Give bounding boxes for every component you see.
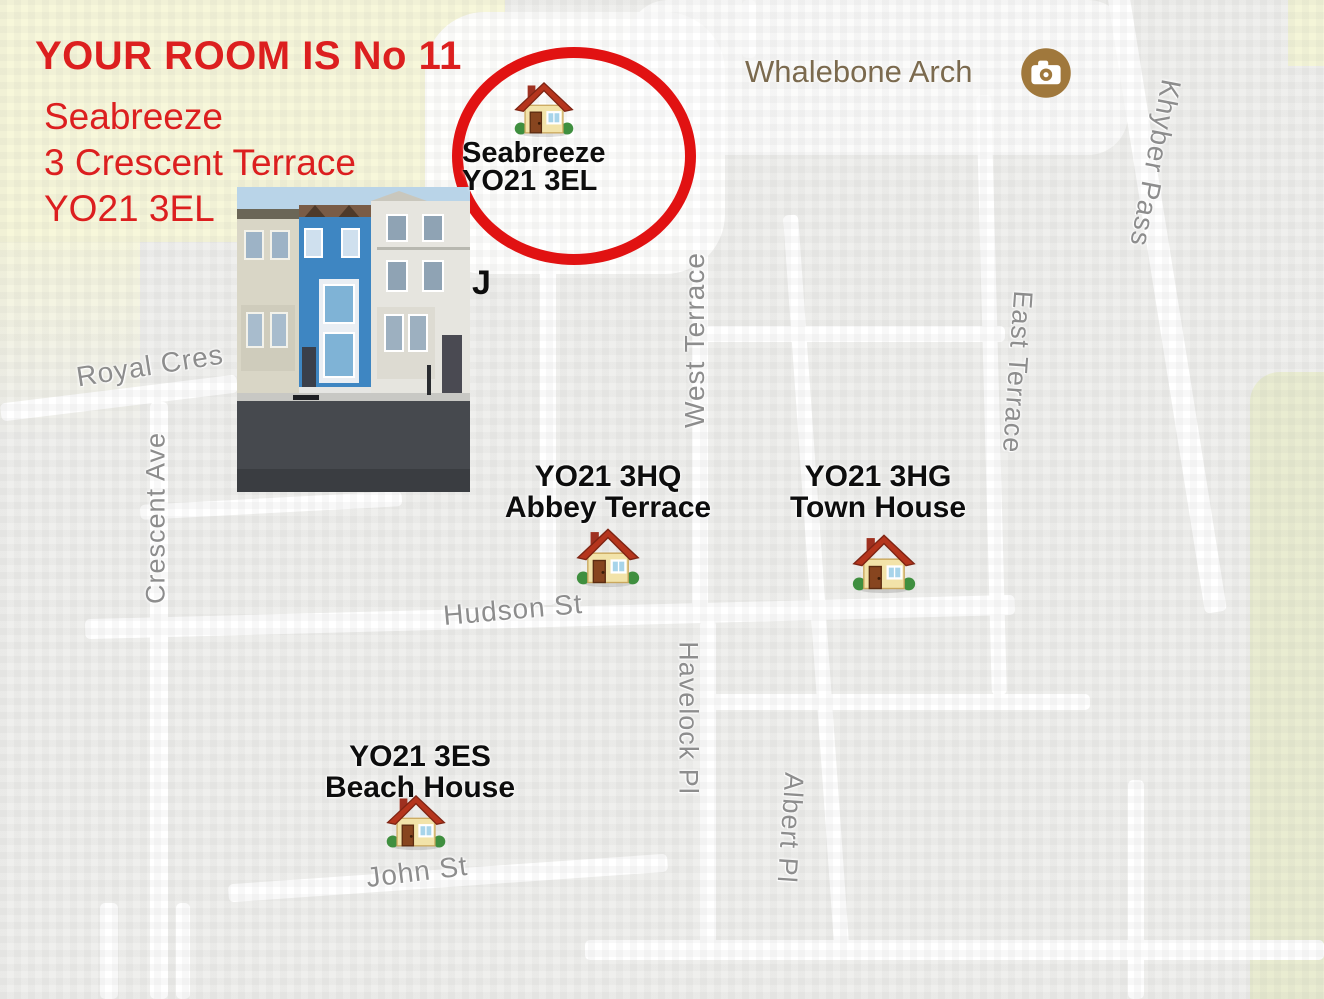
camera-icon[interactable]: [1019, 46, 1073, 100]
road-minor-sw1: [100, 903, 118, 999]
road-esplanade: [140, 491, 402, 520]
road-bottom: [585, 940, 1324, 960]
marker-name: Town House: [728, 492, 1028, 523]
house-icon: [851, 528, 917, 594]
road-minor-vertical: [540, 225, 556, 605]
street-label-havelock-pl: Havelock Pl: [673, 641, 704, 795]
address-postcode: YO21 3EL: [44, 186, 356, 232]
marker-label-town-house: YO21 3HG Town House: [728, 461, 1028, 523]
street-label-east-terrace: East Terrace: [996, 290, 1038, 455]
marker-postcode: YO21 3ES: [270, 741, 570, 772]
house-icon: [513, 76, 575, 138]
road-minor-top: [742, 0, 756, 58]
marker-postcode: YO21 3HQ: [458, 461, 758, 492]
address-name: Seabreeze: [44, 94, 356, 140]
street-label-albert-pl: Albert Pl: [771, 772, 810, 885]
partial-postcode-text: J: [472, 264, 491, 303]
road-minor-se: [1128, 780, 1144, 999]
address-street: 3 Crescent Terrace: [44, 140, 356, 186]
marker-postcode: YO21 3HG: [728, 461, 1028, 492]
street-label-crescent-ave: Crescent Ave: [141, 432, 172, 604]
property-photo: [237, 187, 470, 492]
marker-name: Abbey Terrace: [458, 492, 758, 523]
street-label-west-terrace: West Terrace: [679, 252, 711, 428]
house-icon: [575, 522, 641, 588]
park-region-right: [1250, 372, 1324, 999]
house-icon: [385, 789, 447, 851]
poi-label-whalebone-arch: Whalebone Arch: [745, 54, 972, 90]
road-minor-sw2: [176, 903, 190, 999]
highlight-postcode: YO21 3EL: [462, 167, 606, 195]
road-cross-upper: [695, 326, 1005, 342]
park-region-topright: [1288, 0, 1324, 66]
room-headline: YOUR ROOM IS No 11: [35, 34, 462, 79]
property-address: Seabreeze 3 Crescent Terrace YO21 3EL: [44, 94, 356, 232]
map-canvas[interactable]: Royal Cres Crescent Ave West Terrace Eas…: [0, 0, 1324, 999]
street-label-john-st: John St: [364, 850, 469, 894]
road-cross-lower: [700, 694, 1090, 710]
highlight-name: Seabreeze: [462, 139, 606, 167]
marker-label-abbey-terrace: YO21 3HQ Abbey Terrace: [458, 461, 758, 523]
highlight-label: Seabreeze YO21 3EL: [462, 139, 606, 195]
